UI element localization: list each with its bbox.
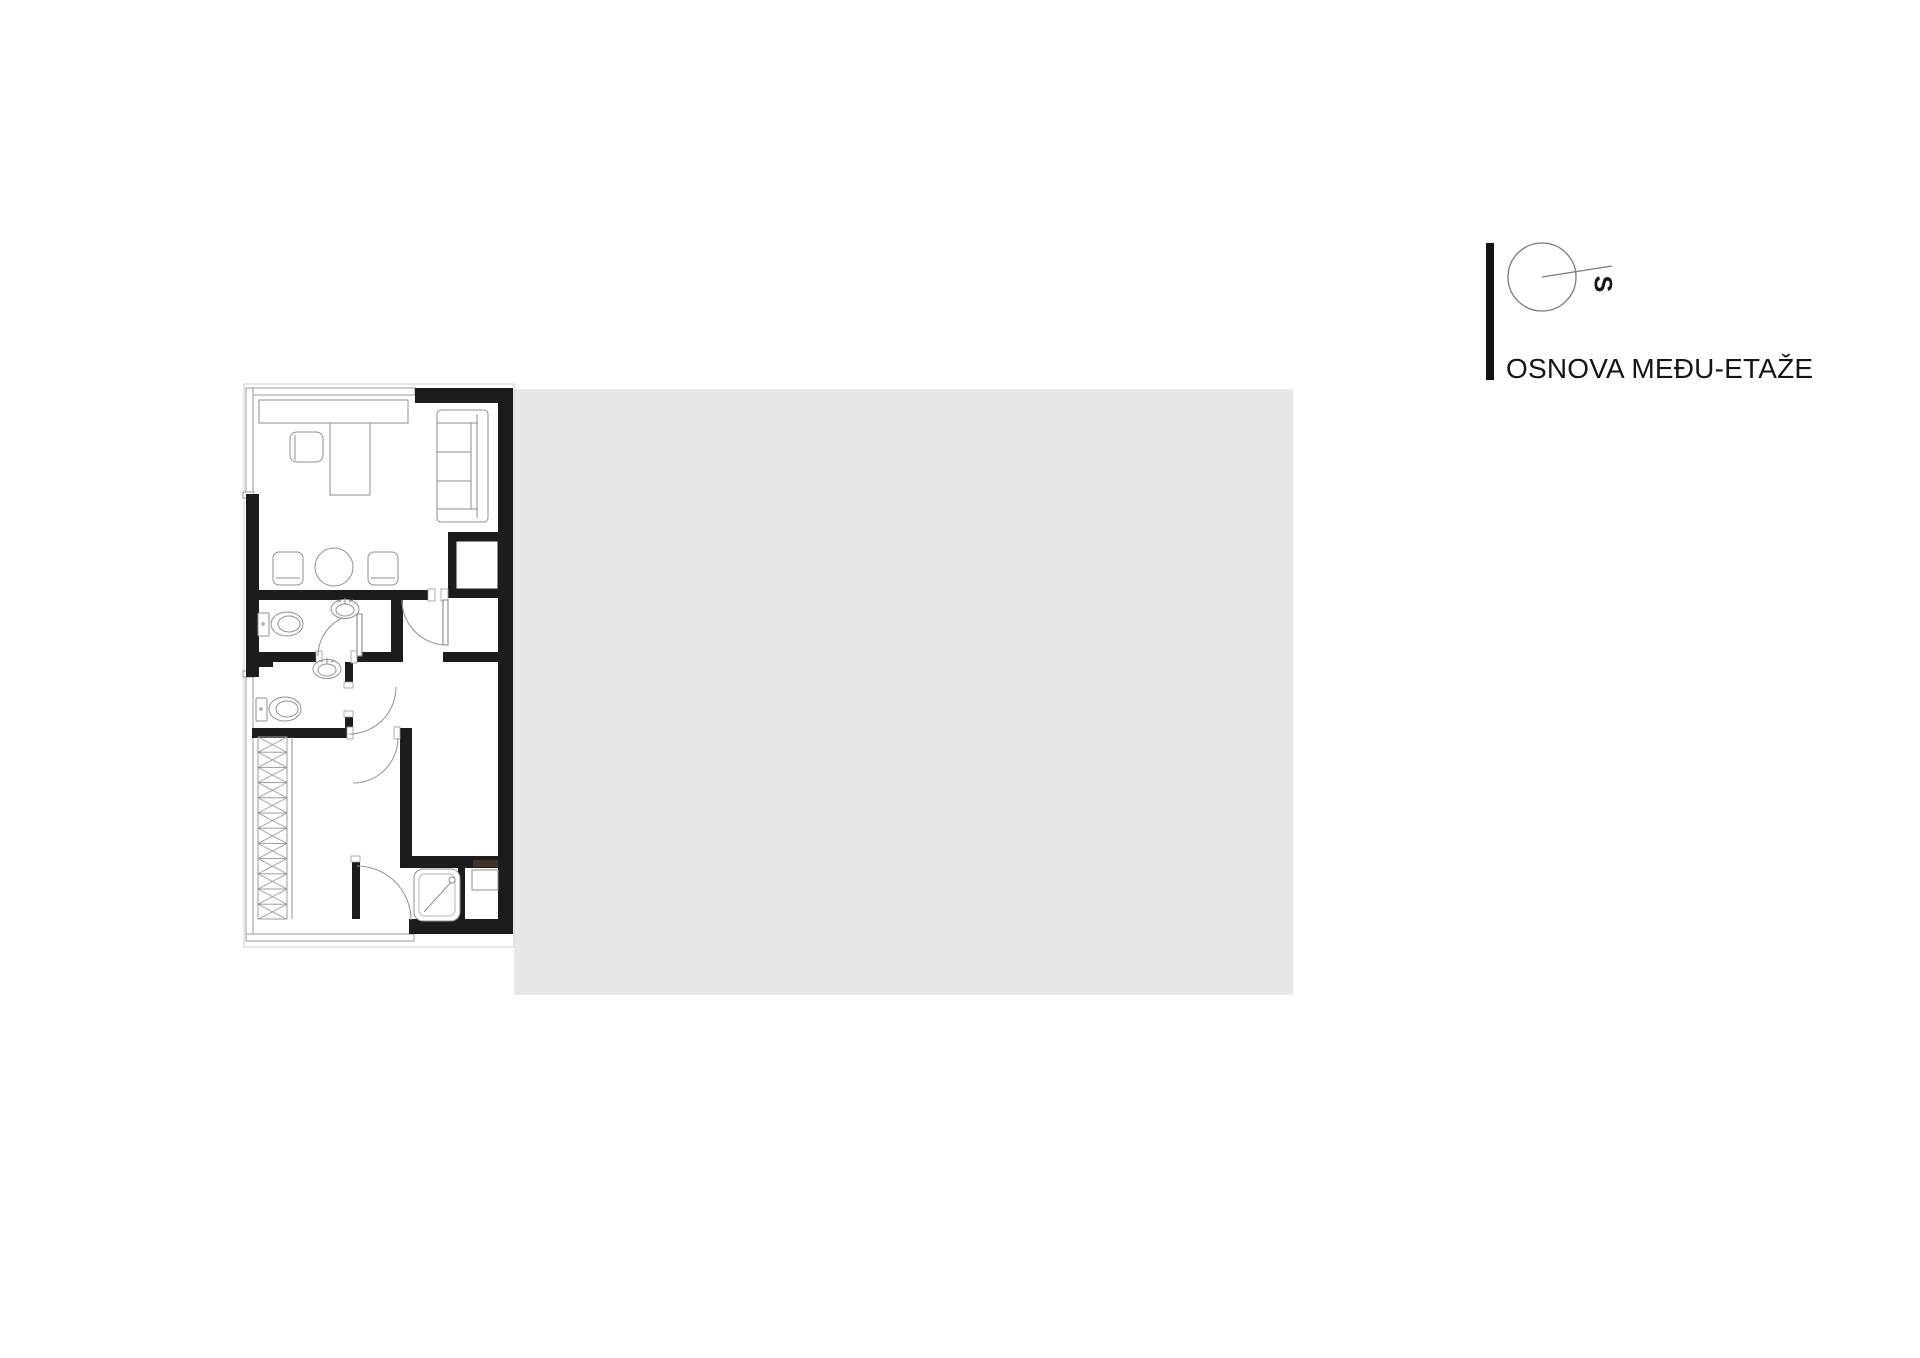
floor-plan-canvas: S <box>0 0 1920 1358</box>
shaded-area <box>514 389 1293 995</box>
wall-detail <box>473 860 498 867</box>
door-leaf <box>357 614 362 656</box>
floor-plan <box>243 384 514 947</box>
door-swing <box>353 738 398 783</box>
toilet-lower <box>256 697 301 721</box>
door-swing <box>318 614 360 656</box>
utility-box <box>472 870 498 890</box>
dining-chair-right <box>368 552 398 585</box>
page: S OSNOVA MEĐU-ETAŽE <box>0 0 1920 1358</box>
door-swing <box>402 600 447 645</box>
round-table <box>315 548 353 586</box>
desk-chair <box>290 432 323 462</box>
compass: S <box>1508 243 1616 311</box>
desk <box>259 400 408 495</box>
window-left-lower <box>246 675 253 941</box>
door-swing <box>349 687 396 734</box>
installation-shaft-interior <box>456 541 498 589</box>
door-swing <box>357 866 411 920</box>
door-jambs <box>316 589 448 862</box>
door-leaf <box>443 600 448 645</box>
toilet-upper <box>258 612 303 636</box>
title-accent-bar <box>1486 243 1494 380</box>
page-title: OSNOVA MEĐU-ETAŽE <box>1506 353 1813 385</box>
compass-label: S <box>1588 276 1616 293</box>
sofa <box>437 410 488 522</box>
window-bottom <box>246 934 414 941</box>
wardrobe <box>258 737 292 919</box>
dining-chair-left <box>273 552 303 585</box>
washbasin-upper <box>331 598 359 619</box>
shower-tray <box>414 869 460 921</box>
window-left-upper <box>246 388 253 498</box>
window-top <box>247 388 415 395</box>
